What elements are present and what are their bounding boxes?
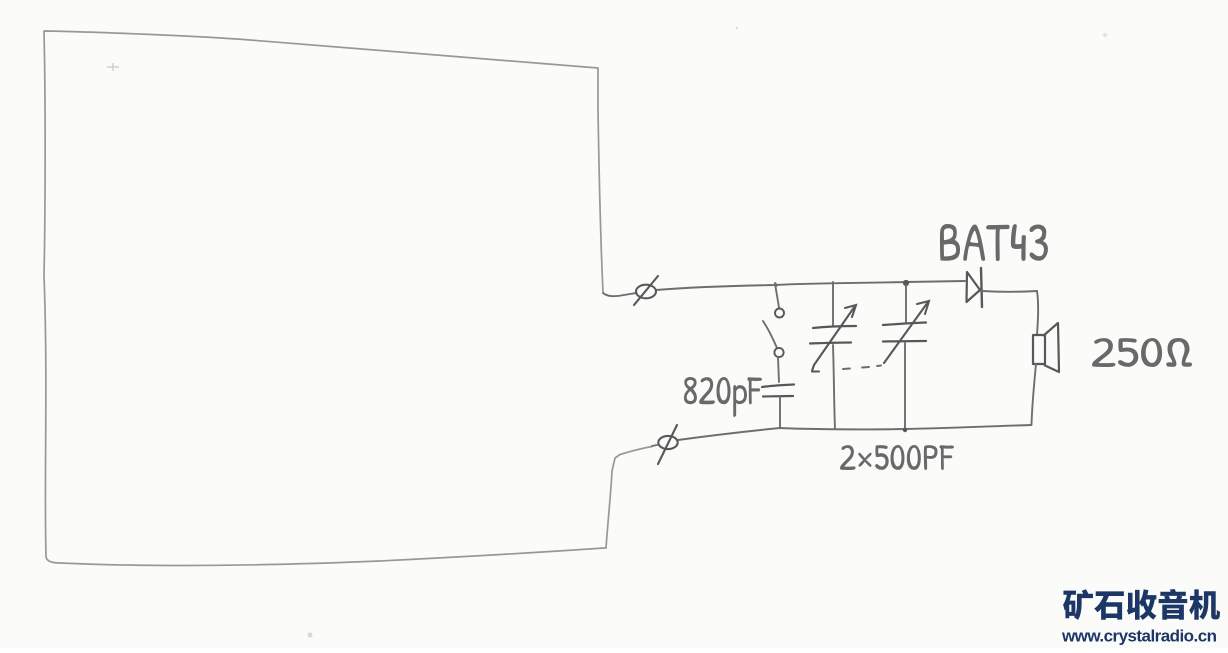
svg-text:www.crystalradio.cn: www.crystalradio.cn xyxy=(1061,627,1217,646)
